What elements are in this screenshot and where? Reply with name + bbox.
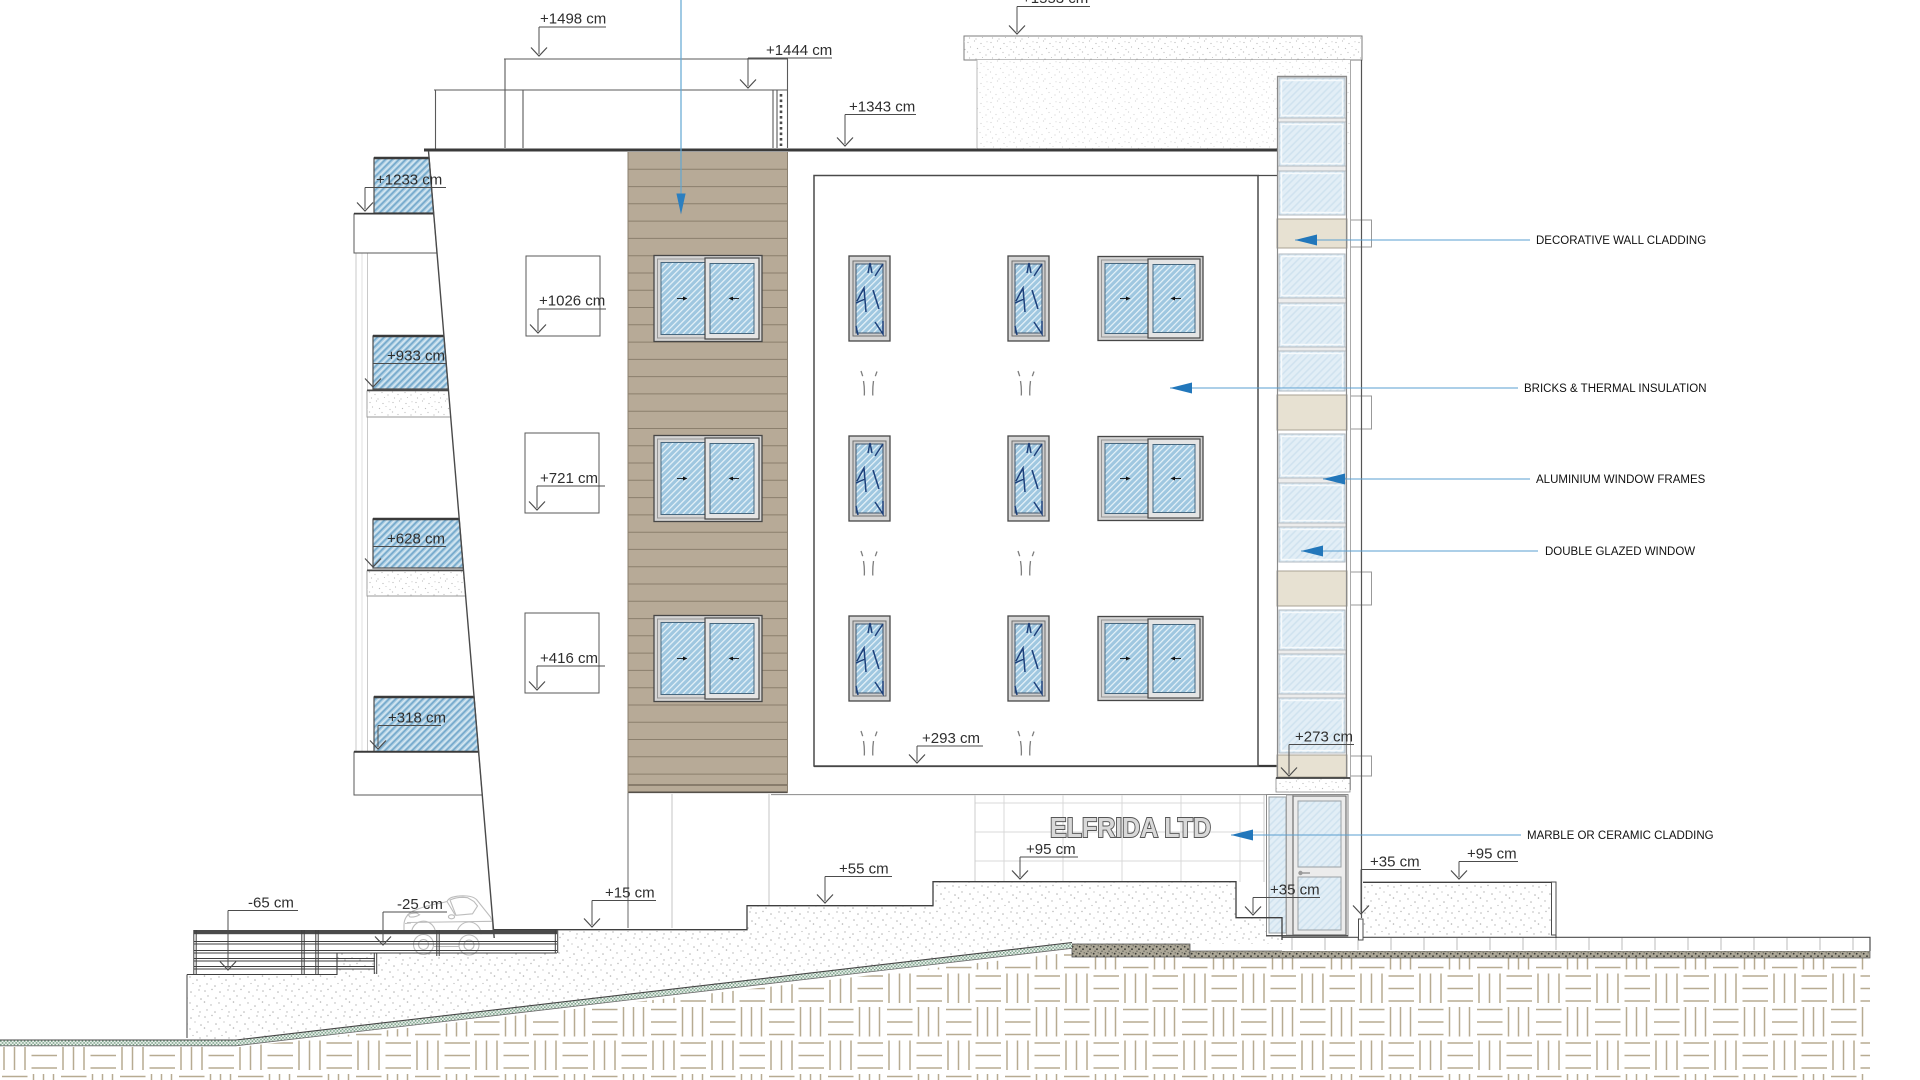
- svg-text:+1444 cm: +1444 cm: [766, 42, 832, 59]
- svg-text:ELFRIDA LTD: ELFRIDA LTD: [1050, 812, 1211, 843]
- svg-text:+416 cm: +416 cm: [540, 650, 598, 667]
- svg-text:+95 cm: +95 cm: [1026, 841, 1076, 858]
- svg-text:DOUBLE GLAZED WINDOW: DOUBLE GLAZED WINDOW: [1545, 546, 1695, 558]
- svg-text:+721 cm: +721 cm: [540, 470, 598, 487]
- svg-text:+1553 cm: +1553 cm: [1022, 0, 1088, 7]
- svg-text:+293 cm: +293 cm: [922, 730, 980, 747]
- svg-text:BRICKS & THERMAL INSULATION: BRICKS & THERMAL INSULATION: [1524, 383, 1707, 395]
- svg-text:DECORATIVE WALL CLADDING: DECORATIVE WALL CLADDING: [1536, 235, 1706, 247]
- svg-text:+1498 cm: +1498 cm: [540, 11, 606, 28]
- svg-text:+1233 cm: +1233 cm: [376, 172, 442, 189]
- svg-text:+15 cm: +15 cm: [605, 885, 655, 902]
- svg-text:+1026 cm: +1026 cm: [539, 293, 605, 310]
- svg-text:+95 cm: +95 cm: [1467, 846, 1517, 863]
- svg-text:+35 cm: +35 cm: [1370, 854, 1420, 871]
- svg-text:MARBLE OR CERAMIC CLADDING: MARBLE OR CERAMIC CLADDING: [1527, 830, 1714, 842]
- svg-text:+55 cm: +55 cm: [839, 861, 889, 878]
- svg-text:-25 cm: -25 cm: [397, 896, 443, 913]
- svg-text:+35 cm: +35 cm: [1270, 882, 1320, 899]
- svg-text:-65 cm: -65 cm: [248, 895, 294, 912]
- svg-text:+1343 cm: +1343 cm: [849, 99, 915, 116]
- svg-text:+273 cm: +273 cm: [1295, 729, 1353, 746]
- svg-text:+933 cm: +933 cm: [387, 348, 445, 365]
- svg-text:+628 cm: +628 cm: [387, 531, 445, 548]
- svg-text:+318 cm: +318 cm: [388, 710, 446, 727]
- svg-text:ALUMINIUM WINDOW FRAMES: ALUMINIUM WINDOW FRAMES: [1536, 474, 1706, 486]
